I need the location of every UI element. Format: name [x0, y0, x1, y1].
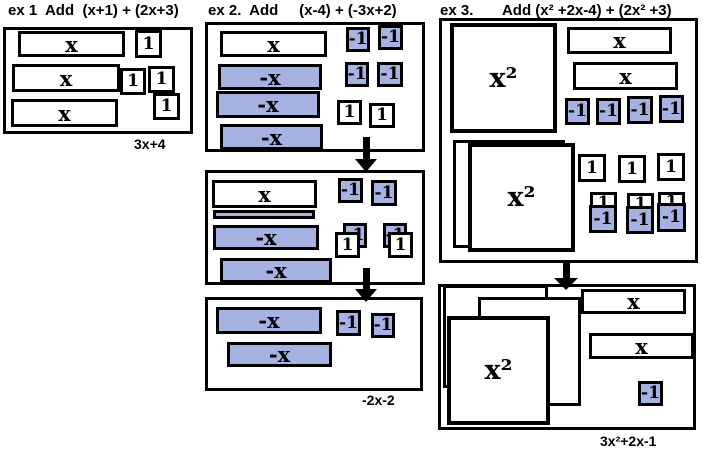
arrow-1-down-icon — [554, 262, 578, 290]
tile-label: 1 — [161, 98, 173, 115]
ex3-title: ex 3. Add (x² +2x-4) + (2x² +3) — [440, 2, 672, 19]
tile-x: x — [220, 31, 327, 57]
tile-neg-one: -1 — [638, 381, 663, 406]
tile-label: x — [627, 291, 640, 312]
tile-neg-one: -1 — [345, 62, 369, 87]
tile-x: x — [567, 27, 672, 54]
tile-label: -x — [257, 94, 278, 115]
tile-label: 1 — [665, 159, 677, 176]
tile-label: -1 — [381, 29, 400, 46]
tile-label: -1 — [662, 209, 681, 226]
arrow-1-down-icon — [355, 137, 377, 172]
tile-neg-one: -1 — [378, 25, 403, 50]
algebra-tiles-worksheet: ex 1 Add (x+1) + (2x+3) ex 2. Add (x-4) … — [0, 0, 705, 455]
tile-neg-one: -1 — [371, 313, 395, 338]
tile-one: 1 — [369, 103, 395, 128]
tile-neg-x: -x — [220, 124, 323, 150]
tile-label: -1 — [662, 101, 681, 118]
arrow-shaft — [363, 268, 370, 289]
tile-x2: x² — [468, 143, 575, 252]
tile-neg-x: -x — [220, 258, 332, 283]
tile-neg-x: -x — [216, 91, 320, 118]
tile-label: -1 — [568, 103, 587, 120]
tile-neg-one: -1 — [626, 206, 654, 234]
tile-label: -x — [261, 127, 282, 148]
tile-neg-one: -1 — [657, 203, 686, 232]
tile-label: 1 — [376, 107, 388, 124]
tile-one: 1 — [153, 93, 180, 120]
tile-label: -1 — [348, 66, 367, 83]
tile-one: 1 — [135, 30, 162, 58]
tile-one: 1 — [148, 66, 175, 93]
tile-neg-one: -1 — [377, 62, 403, 87]
tile-x: x — [212, 180, 317, 208]
tile-neg-one: -1 — [627, 96, 653, 124]
tile-label: x — [258, 184, 271, 205]
tile-neg-one: -1 — [346, 27, 370, 52]
tile-label: 1 — [344, 104, 356, 121]
tile-one: 1 — [337, 100, 362, 125]
ex3-result: 3x²+2x-1 — [600, 433, 656, 449]
arrow-head — [554, 278, 578, 290]
tile-label: 1 — [127, 73, 139, 90]
tile-label: x² — [508, 184, 536, 211]
tile-label: x — [60, 68, 73, 89]
tile-label: -1 — [631, 212, 650, 229]
tile-neg-one: -1 — [336, 310, 361, 336]
tile-label: -1 — [599, 103, 618, 120]
ex2-result: -2x-2 — [362, 392, 395, 408]
tile-one: 1 — [578, 154, 606, 182]
ex1-result: 3x+4 — [134, 136, 166, 152]
tile-neg-one: -1 — [371, 180, 397, 206]
tile-x2: x² — [447, 316, 550, 425]
tile-label: 1 — [395, 237, 407, 254]
tile-label: -x — [255, 227, 276, 248]
tile-label: -1 — [339, 315, 358, 332]
tile-one: 1 — [388, 232, 413, 258]
tile-neg-x: -x — [213, 225, 319, 250]
tile-label: -1 — [374, 317, 393, 334]
tile-label: 1 — [342, 237, 354, 254]
tile-x: x — [12, 64, 120, 92]
tile-strip — [213, 210, 315, 219]
tile-neg-one: -1 — [338, 178, 363, 203]
ex1-title: ex 1 Add (x+1) + (2x+3) — [8, 2, 179, 19]
tile-x: x — [581, 289, 686, 314]
tile-label: -x — [265, 260, 286, 281]
arrow-head — [355, 159, 377, 172]
tile-neg-one: -1 — [565, 98, 590, 125]
tile-label: x — [613, 30, 626, 51]
tile-neg-x: -x — [216, 307, 322, 334]
tile-x2: x² — [450, 23, 557, 133]
tile-x: x — [11, 99, 118, 127]
arrow-2-down-icon — [355, 268, 377, 302]
tile-label: x² — [485, 357, 513, 384]
tile-label: -1 — [381, 66, 400, 83]
tile-label: x — [635, 336, 648, 357]
tile-x: x — [589, 333, 694, 359]
tile-label: 1 — [586, 160, 598, 177]
tile-label: -1 — [349, 31, 368, 48]
tile-neg-x: -x — [218, 64, 322, 90]
tile-x: x — [573, 62, 678, 90]
tile-label: -1 — [341, 182, 360, 199]
arrow-shaft — [363, 137, 370, 159]
tile-neg-one: -1 — [659, 95, 684, 123]
tile-x: x — [18, 31, 125, 57]
tile-label: 1 — [156, 71, 168, 88]
tile-label: -x — [269, 344, 290, 365]
tile-label: -x — [258, 310, 279, 331]
arrow-head — [355, 289, 377, 302]
tile-label: x — [619, 66, 632, 87]
tile-one: 1 — [120, 68, 146, 95]
tile-label: 1 — [143, 36, 155, 53]
tile-one: 1 — [335, 232, 360, 258]
tile-label: -1 — [641, 385, 660, 402]
tile-neg-one: -1 — [596, 98, 621, 125]
tile-label: x — [65, 34, 78, 55]
tile-neg-x: -x — [227, 342, 332, 367]
tile-label: -1 — [631, 102, 650, 119]
tile-label: x — [267, 34, 280, 55]
tile-label: x — [58, 103, 71, 124]
tile-label: x² — [490, 65, 518, 92]
tile-label: 1 — [626, 161, 638, 178]
tile-neg-one: -1 — [589, 205, 617, 233]
tile-label: -1 — [594, 211, 613, 228]
tile-one: 1 — [657, 153, 685, 181]
ex2-title: ex 2. Add (x-4) + (-3x+2) — [208, 2, 397, 19]
arrow-shaft — [563, 262, 570, 278]
tile-label: -1 — [375, 185, 394, 202]
tile-label: -x — [259, 67, 280, 88]
tile-one: 1 — [618, 155, 646, 183]
